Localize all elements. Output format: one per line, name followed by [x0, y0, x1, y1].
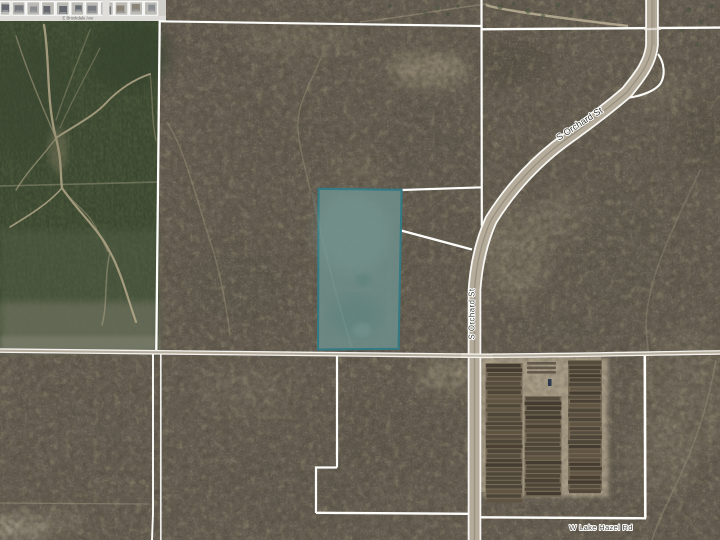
svg-text:W Lake Hazel Rd: W Lake Hazel Rd — [569, 523, 633, 532]
svg-text:E Brookdale Ave: E Brookdale Ave — [63, 16, 95, 21]
svg-text:S Orchard St: S Orchard St — [468, 288, 477, 339]
